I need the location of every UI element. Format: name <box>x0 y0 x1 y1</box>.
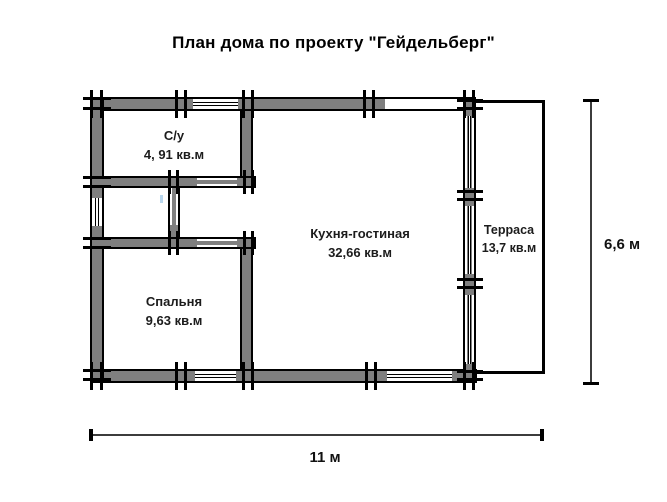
room-label-kitchen: Кухня-гостиная 32,66 кв.м <box>295 224 425 262</box>
room-name: С/у <box>129 126 219 145</box>
wall-top-hollow-section <box>385 97 465 111</box>
joint-tick <box>100 90 103 118</box>
wall-terrace-post-3 <box>463 272 476 297</box>
joint-tick <box>83 237 111 240</box>
joint-tick <box>372 90 375 118</box>
room-area: 9,63 кв.м <box>126 311 222 330</box>
terrace-edge-top <box>474 100 545 103</box>
joint-tick <box>176 170 179 194</box>
joint-tick <box>251 231 254 255</box>
dimension-cap <box>89 429 93 441</box>
room-label-bathroom: С/у 4, 91 кв.м <box>129 126 219 164</box>
joint-tick <box>463 90 466 118</box>
room-label-terrace: Терраса 13,7 кв.м <box>473 221 545 257</box>
door-entrance <box>90 198 104 226</box>
dimension-line-height <box>590 100 592 384</box>
terrace-glazing-3 <box>463 295 476 364</box>
window-bedroom <box>195 369 236 383</box>
joint-tick <box>363 90 366 118</box>
joint-tick <box>83 107 111 110</box>
joint-tick <box>83 369 111 372</box>
dimension-label-width: 11 м <box>275 449 375 466</box>
joint-tick <box>90 90 93 118</box>
joint-tick <box>251 362 254 390</box>
joint-tick <box>472 362 475 390</box>
room-area: 4, 91 кв.м <box>129 145 219 164</box>
joint-tick <box>168 231 171 255</box>
joint-tick <box>472 90 475 118</box>
joint-tick <box>83 378 111 381</box>
wall-top <box>90 97 387 111</box>
room-label-bedroom: Спальня 9,63 кв.м <box>126 292 222 330</box>
floor-plan-canvas: План дома по проекту "Гейдельберг" <box>0 0 667 502</box>
room-area: 13,7 кв.м <box>473 239 545 257</box>
joint-tick <box>83 176 111 179</box>
room-area: 32,66 кв.м <box>295 243 425 262</box>
joint-tick <box>457 198 483 201</box>
dimension-cap <box>540 429 544 441</box>
door-bathroom <box>197 176 237 188</box>
joint-tick <box>457 278 483 281</box>
joint-tick <box>242 90 245 118</box>
window-kitchen <box>387 369 452 383</box>
joint-tick <box>175 362 178 390</box>
joint-tick <box>83 185 111 188</box>
dimension-cap <box>583 99 599 102</box>
joint-tick <box>457 99 483 102</box>
joint-tick <box>175 90 178 118</box>
joint-tick <box>457 286 483 289</box>
door-bedroom <box>197 237 237 249</box>
joint-tick <box>374 362 377 390</box>
joint-tick <box>457 107 483 110</box>
joint-tick <box>457 378 483 381</box>
joint-tick <box>243 231 246 255</box>
joint-tick <box>457 370 483 373</box>
joint-tick <box>463 362 466 390</box>
room-name: Спальня <box>126 292 222 311</box>
dimension-cap <box>583 382 599 385</box>
joint-tick <box>251 170 254 194</box>
stray-mark <box>160 195 163 203</box>
terrace-edge-bottom <box>474 371 545 374</box>
joint-tick <box>184 362 187 390</box>
joint-tick <box>83 97 111 100</box>
joint-tick <box>365 362 368 390</box>
room-name: Кухня-гостиная <box>295 224 425 243</box>
dimension-label-height: 6,6 м <box>604 236 640 253</box>
joint-tick <box>243 170 246 194</box>
joint-tick <box>251 90 254 118</box>
joint-tick <box>457 190 483 193</box>
joint-tick <box>168 170 171 194</box>
joint-tick <box>176 231 179 255</box>
window-bathroom <box>193 97 238 111</box>
terrace-glazing-1 <box>463 116 476 188</box>
wall-bedroom-right <box>240 247 253 371</box>
joint-tick <box>83 246 111 249</box>
joint-tick <box>184 90 187 118</box>
joint-tick <box>242 362 245 390</box>
dimension-line-width <box>91 434 543 436</box>
room-name: Терраса <box>473 221 545 239</box>
page-title: План дома по проекту "Гейдельберг" <box>0 33 667 53</box>
joint-tick <box>100 362 103 390</box>
joint-tick <box>90 362 93 390</box>
